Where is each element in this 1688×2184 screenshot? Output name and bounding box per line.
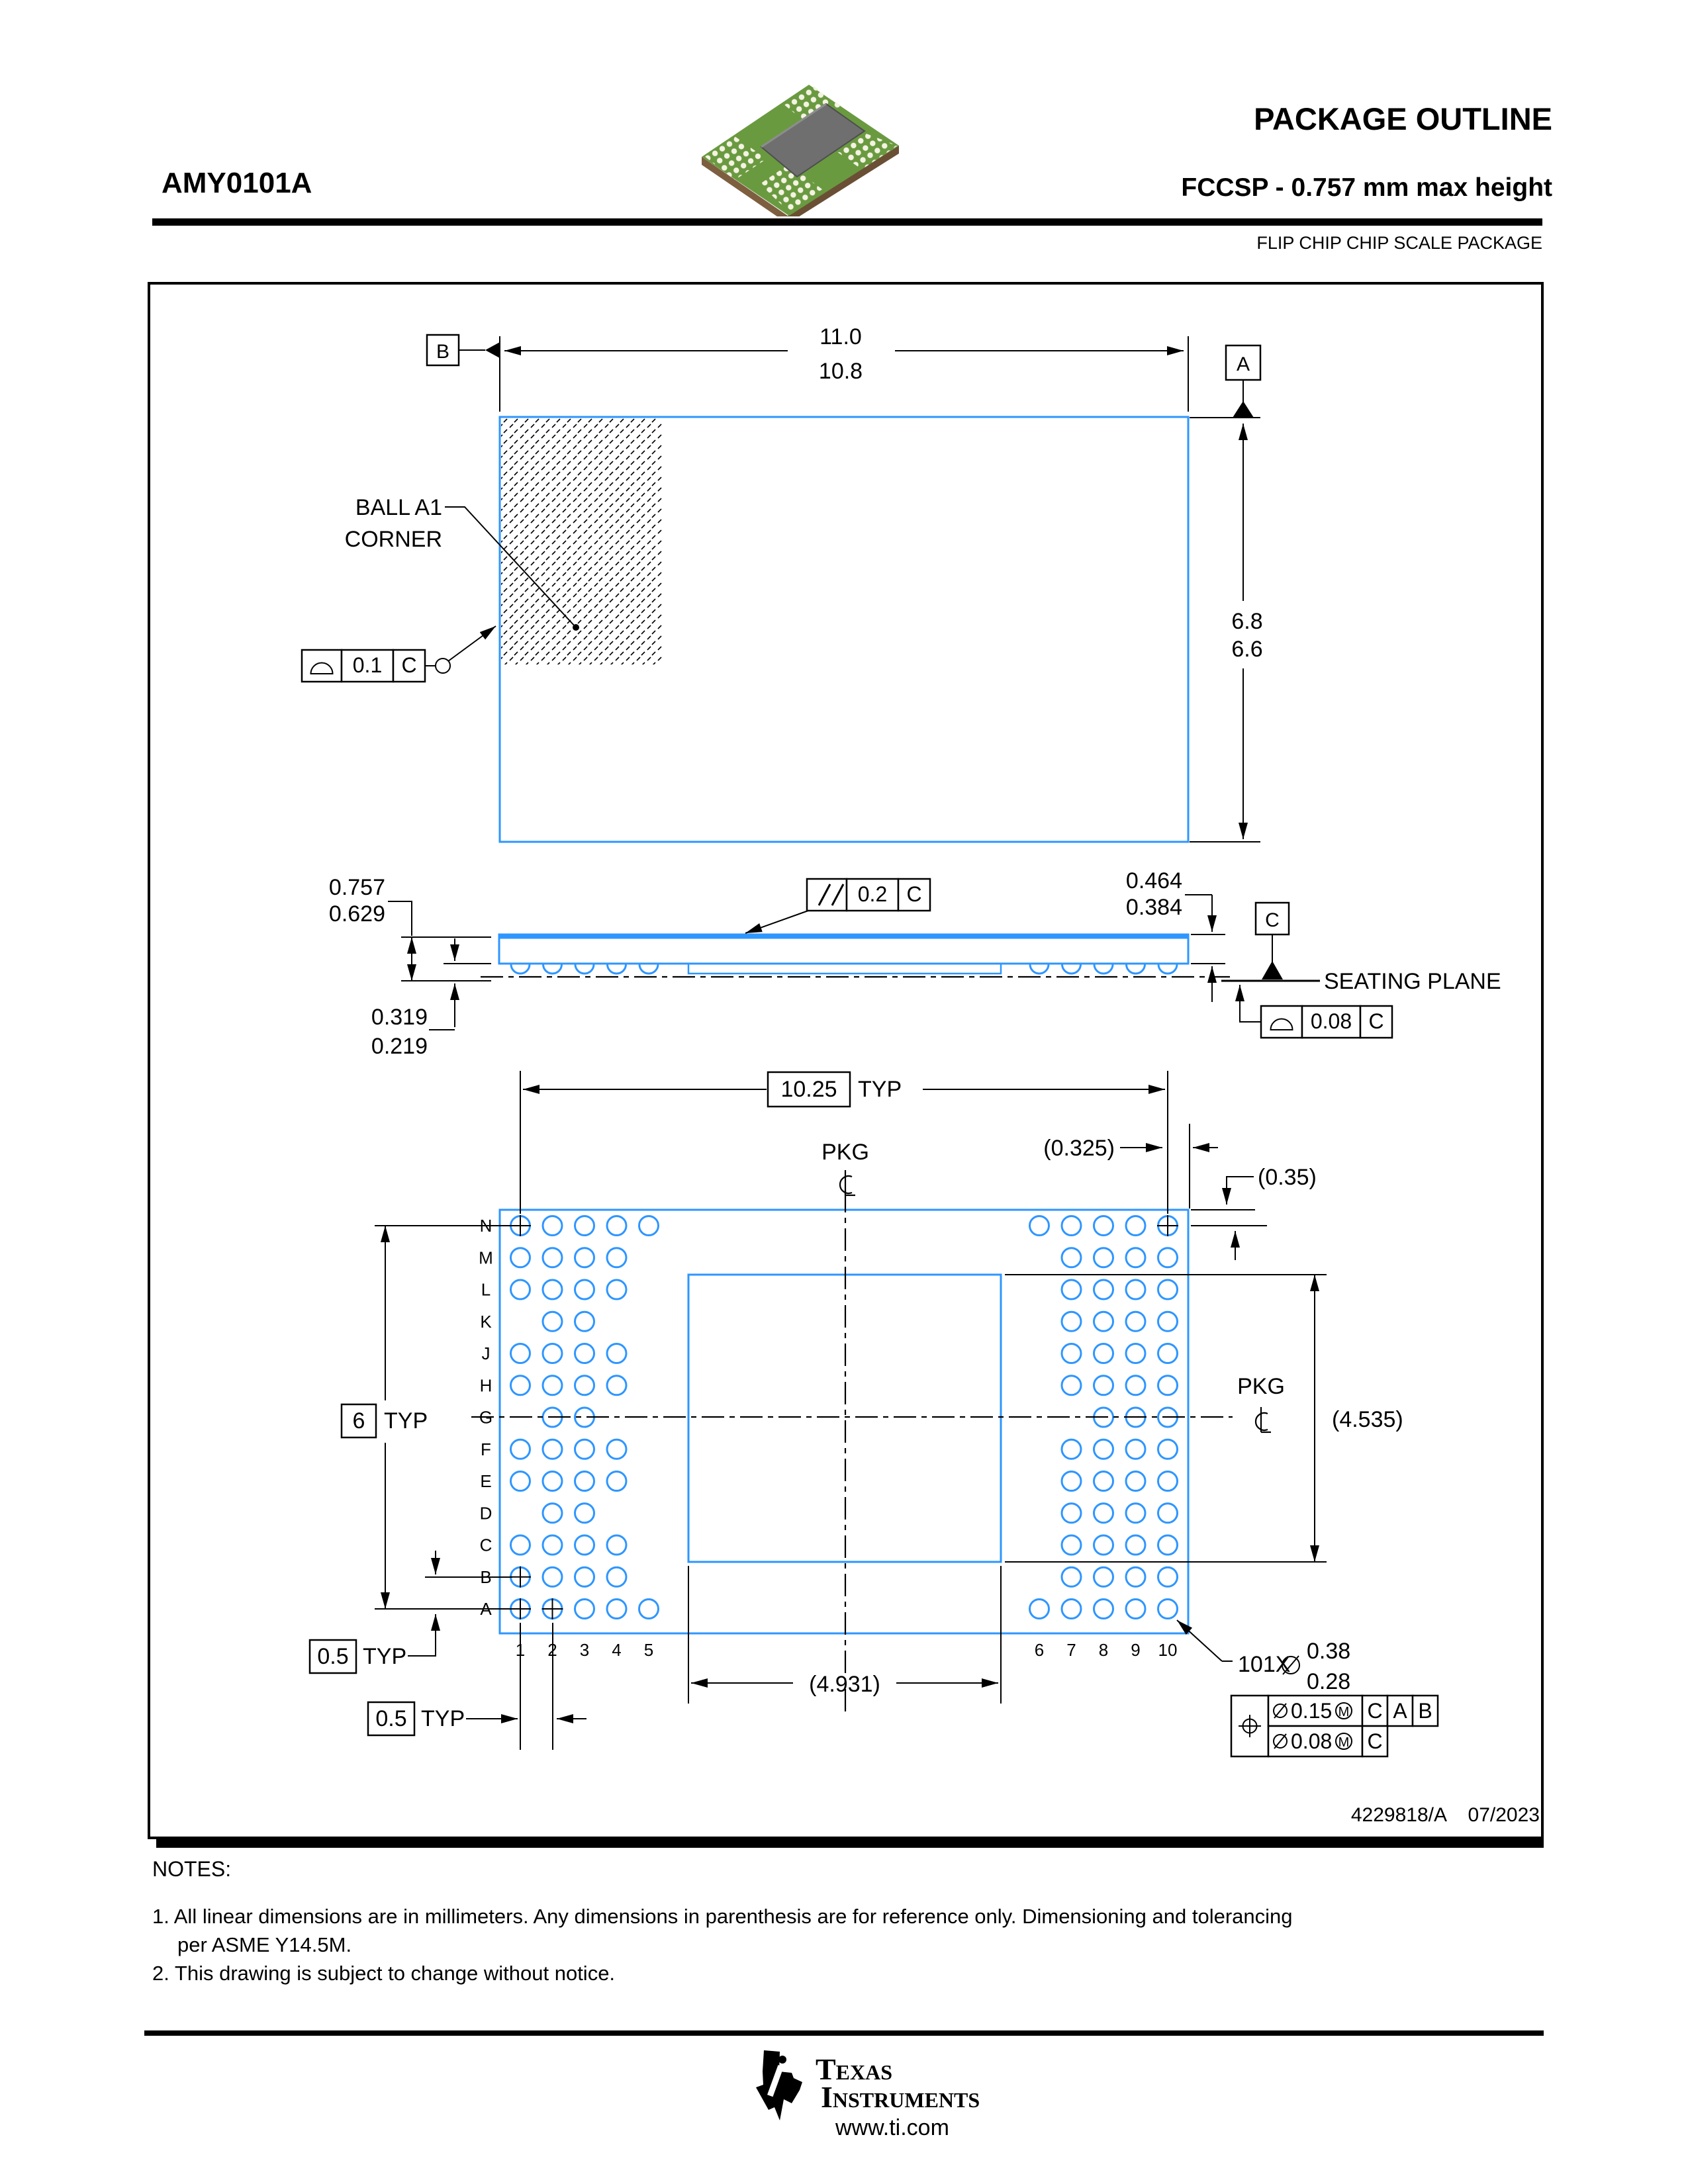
ball-J1 (511, 1344, 530, 1363)
row-label-G: G (479, 1408, 492, 1428)
pkg-label-right: PKG (1237, 1374, 1285, 1399)
ball-a1-label: CORNER (345, 527, 442, 552)
ball-D2 (543, 1504, 562, 1523)
package-outline-drawing: 11.0 10.8 B A 6.8 6.6 BALL A1 CORNER 0.1… (146, 282, 1544, 1853)
notes-heading: NOTES: (152, 1857, 231, 1882)
leader-arrow (1177, 1620, 1222, 1661)
rows-span-value: 6 (353, 1408, 365, 1433)
ball-A3 (575, 1600, 594, 1619)
leader-arrow (1240, 985, 1261, 1022)
row-label-F: F (481, 1439, 491, 1459)
side-ball-7 (1062, 964, 1081, 974)
dim-width-min: 10.8 (819, 359, 863, 384)
ball-a1-corner-stipple (501, 418, 662, 664)
ball-E4 (607, 1472, 626, 1491)
side-ball-10 (1158, 964, 1177, 974)
ball-K10 (1158, 1312, 1178, 1331)
ball-L9 (1126, 1280, 1145, 1299)
fcf-cell (302, 650, 342, 682)
margin-x-dim: (0.325) (1043, 1136, 1115, 1161)
row-label-E: E (480, 1471, 491, 1491)
footer-rule (144, 2030, 1544, 2036)
col-label-4: 4 (612, 1640, 621, 1660)
ball-E8 (1094, 1472, 1113, 1491)
mmc-modifier-letter: M (1338, 1735, 1350, 1750)
ball-M3 (575, 1248, 594, 1267)
thickness-min: 0.384 (1126, 895, 1182, 920)
side-ball-6 (1030, 964, 1049, 974)
ball-L8 (1094, 1280, 1113, 1299)
side-ball-5 (639, 964, 658, 974)
flatness-value: 0.1 (353, 653, 382, 677)
ball-D10 (1158, 1504, 1178, 1523)
doc-date: 07/2023 (1468, 1804, 1540, 1826)
ball-A8 (1094, 1600, 1113, 1619)
ball-E7 (1062, 1472, 1081, 1491)
height-min: 0.629 (329, 901, 385, 927)
ball-C4 (607, 1535, 626, 1555)
ball-L4 (607, 1280, 626, 1299)
col-label-10: 10 (1158, 1640, 1178, 1660)
ball-F9 (1126, 1439, 1145, 1459)
note-1: 1. All linear dimensions are in millimet… (152, 1905, 1293, 1929)
col-label-7: 7 (1066, 1640, 1076, 1660)
row-label-K: K (480, 1312, 492, 1332)
ball-M9 (1126, 1248, 1145, 1267)
ball-K9 (1126, 1312, 1145, 1331)
ball-J4 (607, 1344, 626, 1363)
col-label-3: 3 (580, 1640, 589, 1660)
row-label-H: H (480, 1375, 492, 1395)
ball-A6 (1030, 1600, 1049, 1619)
die-height-dim: (4.535) (1332, 1407, 1403, 1432)
row-label-L: L (481, 1280, 491, 1300)
ball-F7 (1062, 1439, 1081, 1459)
ball-M4 (607, 1248, 626, 1267)
datum-c-triangle-icon (1262, 961, 1283, 979)
pitch-span-value: 10.25 (780, 1077, 837, 1102)
standoff-min: 0.219 (371, 1034, 428, 1059)
typ-label: TYP (363, 1644, 406, 1669)
dim-width-max: 11.0 (820, 324, 862, 349)
col-pitch-value: 0.5 (375, 1706, 406, 1731)
top-view: 11.0 10.8 B A 6.8 6.6 BALL A1 CORNER 0.1… (302, 324, 1263, 842)
ball-C3 (575, 1535, 594, 1555)
side-view-balls (511, 964, 1177, 974)
die-side-outline (688, 964, 1001, 974)
dim-elbow (388, 901, 412, 936)
side-ball-8 (1094, 964, 1113, 974)
ball-H2 (543, 1376, 562, 1395)
standoff-max: 0.319 (371, 1005, 428, 1030)
ball-C2 (543, 1535, 562, 1555)
brand-website: www.ti.com (835, 2115, 949, 2141)
ball-A10 (1158, 1600, 1178, 1619)
page-title: PACKAGE OUTLINE (1254, 101, 1552, 137)
ball-C10 (1158, 1535, 1178, 1555)
ball-M7 (1062, 1248, 1081, 1267)
ball-H10 (1158, 1376, 1178, 1395)
ball-F2 (543, 1439, 562, 1459)
ball-B10 (1158, 1567, 1178, 1586)
ball-H1 (511, 1376, 530, 1395)
ball-J2 (543, 1344, 562, 1363)
position-tol1-value: 0.15 (1291, 1699, 1332, 1723)
package-side-body (499, 934, 1188, 964)
side-ball-2 (543, 964, 562, 974)
col-label-8: 8 (1099, 1640, 1108, 1660)
position-tolerance-frame: 0.15 M C A B 0.08 M C (1231, 1696, 1438, 1756)
package-bottom-outline (500, 1210, 1188, 1633)
col-label-9: 9 (1131, 1640, 1140, 1660)
ball-J10 (1158, 1344, 1178, 1363)
ball-N6 (1030, 1216, 1049, 1236)
ball-dia-max: 0.38 (1307, 1639, 1350, 1664)
centerline-icon (1256, 1407, 1271, 1432)
ball-F1 (511, 1439, 530, 1459)
position-tol2-value: 0.08 (1291, 1729, 1332, 1753)
row-label-D: D (480, 1503, 492, 1523)
ball-D8 (1094, 1504, 1113, 1523)
position-tol1-datum3: B (1418, 1699, 1432, 1723)
ball-N3 (575, 1216, 594, 1236)
dim-height-max: 6.8 (1231, 609, 1262, 634)
ball-F3 (575, 1439, 594, 1459)
thickness-max: 0.464 (1126, 868, 1182, 893)
leader-dot (573, 624, 579, 631)
datum-b-label: B (436, 341, 449, 363)
centerline-icon (840, 1170, 855, 1195)
ball-E2 (543, 1472, 562, 1491)
ball-C1 (511, 1535, 530, 1555)
brand-name-line2: Instruments (821, 2079, 980, 2115)
part-number: AMY0101A (162, 167, 312, 200)
col-labels: 12345678910 (516, 1640, 1178, 1660)
height-max: 0.757 (329, 875, 385, 900)
side-view: 0.757 0.629 0.319 0.219 0.2 C 0.464 0.38… (329, 868, 1501, 1059)
seating-flatness-value: 0.08 (1311, 1009, 1352, 1033)
ball-E1 (511, 1472, 530, 1491)
parallelism-value: 0.2 (858, 882, 887, 906)
ball-K3 (575, 1312, 594, 1331)
dim-height-min: 6.6 (1231, 637, 1262, 662)
parallelism-datum: C (906, 882, 921, 906)
ball-B8 (1094, 1567, 1113, 1586)
seating-plane-label: SEATING PLANE (1324, 969, 1501, 994)
ball-K7 (1062, 1312, 1081, 1331)
row-label-J: J (482, 1343, 491, 1363)
ball-B4 (607, 1567, 626, 1586)
row-label-M: M (479, 1248, 493, 1267)
ball-E3 (575, 1472, 594, 1491)
ball-K2 (543, 1312, 562, 1331)
mmc-modifier-letter: M (1338, 1705, 1350, 1719)
side-ball-9 (1127, 964, 1145, 974)
ball-K8 (1094, 1312, 1113, 1331)
ball-A7 (1062, 1600, 1081, 1619)
ball-L2 (543, 1280, 562, 1299)
ball-J9 (1126, 1344, 1145, 1363)
position-tol2-datum: C (1367, 1729, 1382, 1753)
ball-N7 (1062, 1216, 1081, 1236)
ball-M10 (1158, 1248, 1178, 1267)
ball-H9 (1126, 1376, 1145, 1395)
row-label-C: C (480, 1535, 492, 1555)
ball-a1-label: BALL A1 (355, 495, 442, 520)
ball-J3 (575, 1344, 594, 1363)
datum-a-triangle-icon (1233, 401, 1254, 418)
ball-B9 (1126, 1567, 1145, 1586)
ball-N8 (1094, 1216, 1113, 1236)
row-pitch-value: 0.5 (317, 1644, 348, 1669)
col-label-6: 6 (1035, 1640, 1044, 1660)
typ-label: TYP (858, 1077, 902, 1102)
ball-E10 (1158, 1472, 1178, 1491)
ball-C7 (1062, 1535, 1081, 1555)
ball-D3 (575, 1504, 594, 1523)
position-tol1-datum1: C (1367, 1699, 1382, 1723)
bottom-view: NMLKJHGFEDCBA 12345678910 PKG PKG (4.535… (310, 1071, 1438, 1756)
seating-flatness-datum: C (1368, 1009, 1383, 1033)
ball-dia-min: 0.28 (1307, 1669, 1350, 1694)
margin-y-dim: (0.35) (1258, 1165, 1317, 1190)
leader-arrow (745, 911, 808, 933)
ball-N4 (607, 1216, 626, 1236)
ball-H4 (607, 1376, 626, 1395)
ball-J7 (1062, 1344, 1081, 1363)
datum-b-triangle-icon (485, 342, 500, 358)
ball-H3 (575, 1376, 594, 1395)
leader-arrow (448, 626, 496, 661)
ball-D9 (1126, 1504, 1145, 1523)
ball-J8 (1094, 1344, 1113, 1363)
package-type-label: FLIP CHIP CHIP SCALE PACKAGE (1256, 233, 1542, 253)
note-1-continued: per ASME Y14.5M. (177, 1933, 352, 1957)
typ-label: TYP (384, 1408, 428, 1433)
ball-M1 (511, 1248, 530, 1267)
ball-E9 (1126, 1472, 1145, 1491)
drawing-border-shadow (156, 1839, 1544, 1848)
ball-A4 (607, 1600, 626, 1619)
ball-B7 (1062, 1567, 1081, 1586)
datum-a-label: A (1237, 353, 1250, 375)
ball-D7 (1062, 1504, 1081, 1523)
ball-H7 (1062, 1376, 1081, 1395)
typ-label: TYP (421, 1706, 465, 1731)
row-labels: NMLKJHGFEDCBA (479, 1216, 493, 1619)
ball-C9 (1126, 1535, 1145, 1555)
ti-logo-icon (745, 2049, 812, 2122)
ball-M2 (543, 1248, 562, 1267)
side-ball-3 (575, 964, 594, 974)
ball-A9 (1126, 1600, 1145, 1619)
ball-F4 (607, 1439, 626, 1459)
note-2: 2. This drawing is subject to change wit… (152, 1962, 615, 1985)
ball-F10 (1158, 1439, 1178, 1459)
datum-c-label: C (1265, 909, 1280, 931)
ball-L7 (1062, 1280, 1081, 1299)
die-width-dim: (4.931) (809, 1672, 880, 1697)
ball-F8 (1094, 1439, 1113, 1459)
ball-N5 (639, 1216, 659, 1236)
side-ball-4 (608, 964, 626, 974)
doc-number: 4229818/A (1351, 1804, 1447, 1826)
flatness-datum: C (401, 653, 416, 677)
ball-A5 (639, 1600, 659, 1619)
ball-L1 (511, 1280, 530, 1299)
position-tol1-datum2: A (1393, 1699, 1407, 1723)
page-subtitle: FCCSP - 0.757 mm max height (1181, 173, 1552, 203)
ball-L10 (1158, 1280, 1178, 1299)
chip-3d-image (695, 81, 907, 216)
leader-arrow (408, 1614, 436, 1656)
leader-arrow (1227, 1177, 1254, 1205)
ball-L3 (575, 1280, 594, 1299)
side-ball-1 (511, 964, 530, 974)
fcf-cell (807, 879, 847, 911)
col-label-5: 5 (644, 1640, 653, 1660)
header-rule (152, 218, 1542, 226)
ball-B2 (543, 1567, 562, 1586)
pkg-label-top: PKG (821, 1140, 869, 1165)
ball-M8 (1094, 1248, 1113, 1267)
ball-B3 (575, 1567, 594, 1586)
fcf-cell (1261, 1006, 1302, 1038)
ball-N9 (1126, 1216, 1145, 1236)
ball-H8 (1094, 1376, 1113, 1395)
ball-C8 (1094, 1535, 1113, 1555)
ball-N2 (543, 1216, 562, 1236)
